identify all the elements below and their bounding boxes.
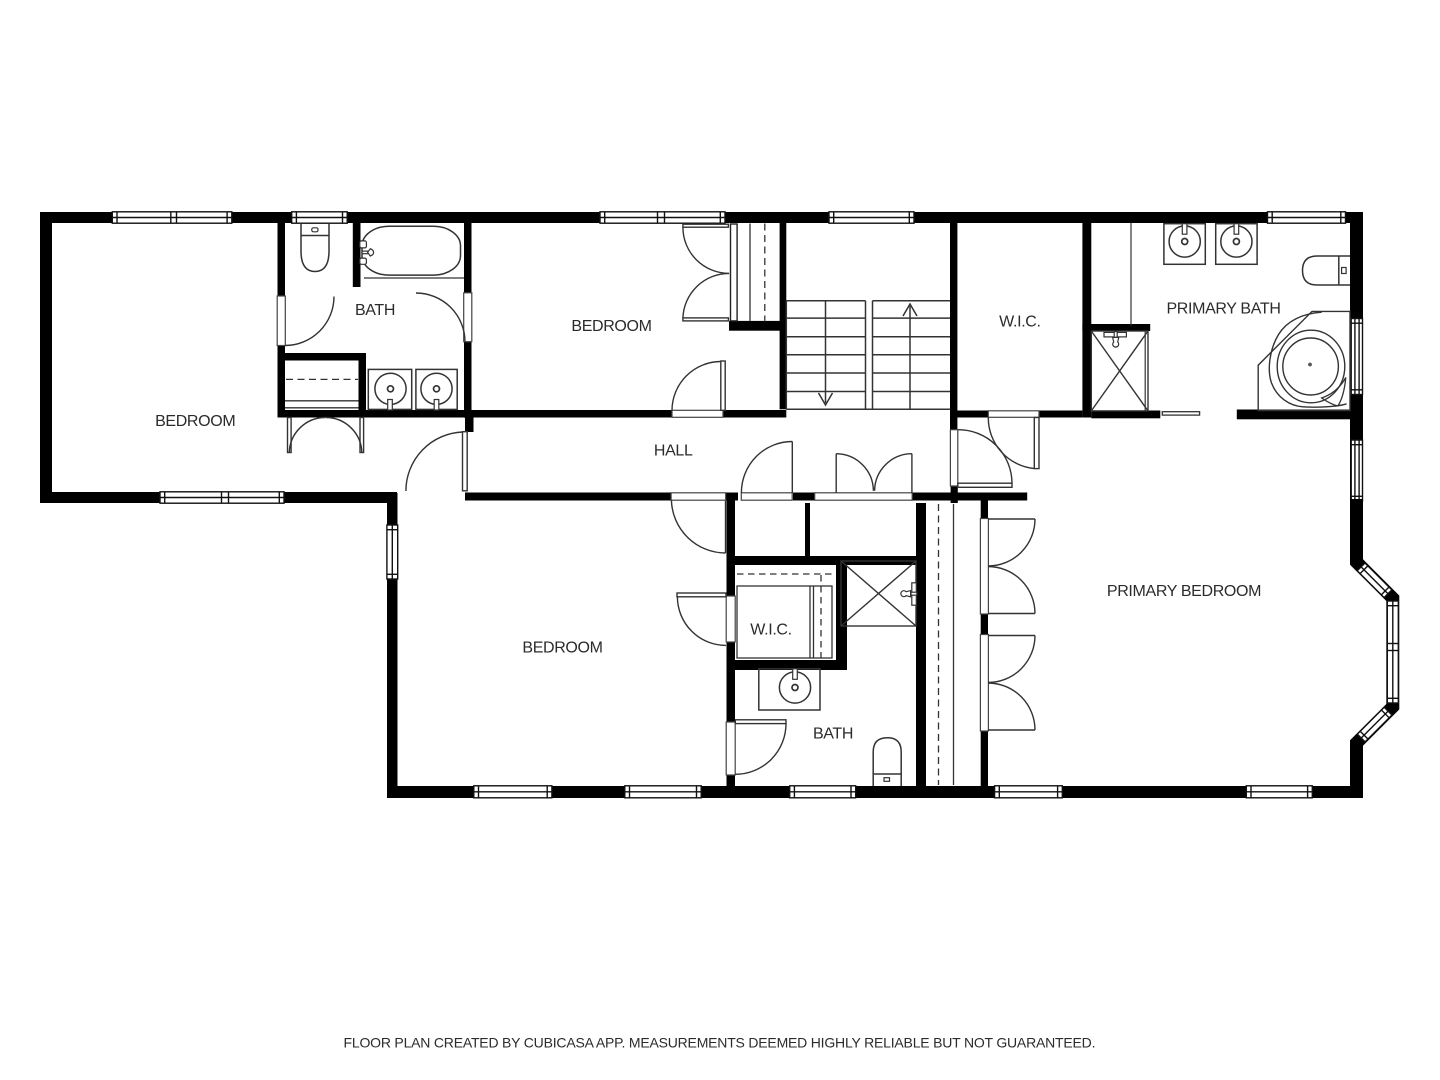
svg-text:W.I.C.: W.I.C.: [750, 621, 791, 638]
svg-text:BATH: BATH: [355, 302, 395, 319]
svg-text:BEDROOM: BEDROOM: [571, 318, 651, 335]
svg-text:HALL: HALL: [654, 442, 693, 459]
svg-text:FLOOR PLAN CREATED BY CUBICASA: FLOOR PLAN CREATED BY CUBICASA APP. MEAS…: [344, 1035, 1096, 1051]
svg-text:BATH: BATH: [813, 725, 853, 742]
svg-text:BEDROOM: BEDROOM: [155, 413, 235, 430]
svg-text:PRIMARY BATH: PRIMARY BATH: [1166, 300, 1280, 317]
svg-text:W.I.C.: W.I.C.: [999, 314, 1040, 331]
svg-text:BEDROOM: BEDROOM: [522, 639, 602, 656]
svg-text:PRIMARY BEDROOM: PRIMARY BEDROOM: [1107, 583, 1261, 600]
